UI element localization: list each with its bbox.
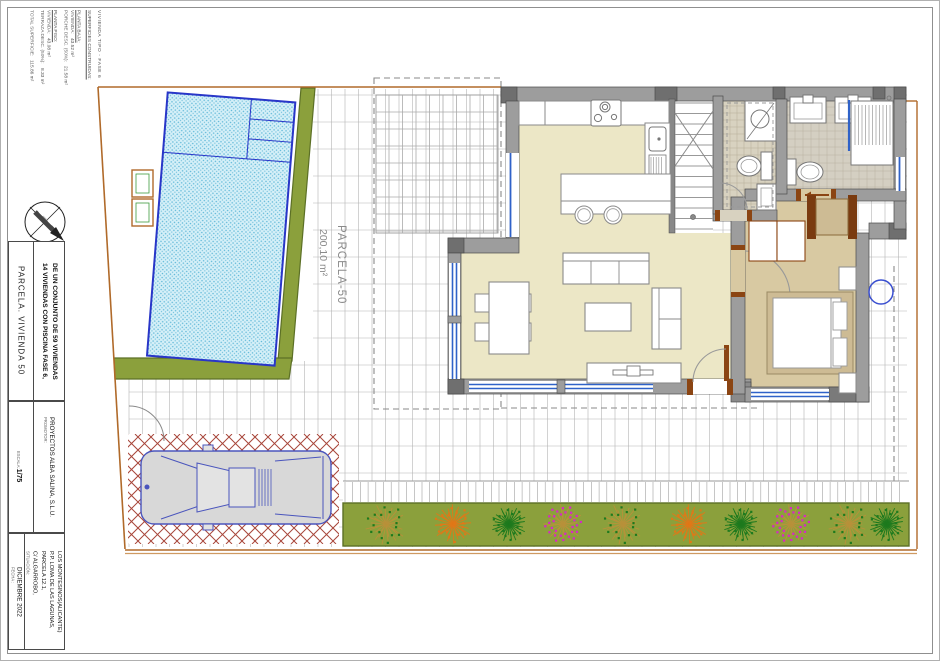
- parcel-title-cell: PARCELA. VIVIENDA 50: [9, 242, 34, 400]
- scale-value: 1/75: [15, 469, 22, 483]
- titleblock-project: PARCELA. VIVIENDA 50 14 VIVIENDAS CON PI…: [8, 241, 65, 401]
- promoter-name: PROYECTOS ALBA SALINA, S.L.U.: [48, 417, 55, 517]
- project-title-line1: 14 VIVIENDAS CON PISCINA FASE 6,: [39, 263, 49, 380]
- scale-label: ESCALA:: [16, 451, 21, 469]
- date-cell: FECHA : DICIEMBRE 2022: [9, 534, 25, 649]
- titleblock-date-location: FECHA : DICIEMBRE 2022 SITUACIÓN: C/ ALG…: [8, 533, 65, 650]
- surfaces-header: SUPERFICIES CONSTRUIDAS:: [84, 10, 90, 114]
- promoter-cell: PROMOTOR: PROYECTOS ALBA SALINA, S.L.U.: [34, 402, 64, 532]
- surfaces-total: TOTAL SUPERFICIE:115.86 m²: [27, 10, 33, 114]
- scale-cell: ESCALA:1/75: [9, 402, 34, 532]
- titleblock-scale-promoter: ESCALA:1/75 PROMOTOR: PROYECTOS ALBA SAL…: [8, 401, 65, 533]
- surfaces-block: TOTAL SUPERFICIE:115.86 m² PLANTA PISO: …: [27, 10, 101, 114]
- parcel-title: PARCELA. VIVIENDA 50: [17, 266, 26, 375]
- doc-type-label: VIVIENDA TIPO - FASE 6: [95, 10, 101, 114]
- date-value: DICIEMBRE 2022: [15, 567, 22, 617]
- drawing-sheet: PARCELA-50 200,10 m² TOTAL SUPERFICIE:11…: [0, 0, 940, 661]
- surfaces-group-planta-piso: PLANTA PISO: VIVIENDA:43.08 m² TERRAZA D…: [37, 10, 56, 114]
- sheet-inner-frame: [7, 7, 933, 654]
- project-title-line2: DE UN CONJUNTO DE 59 VIVIENDAS: [49, 263, 59, 380]
- surfaces-group-planta-baja: PLANTA BAJA: VIVIENDA:43.52 m² PORCHE DE…: [61, 10, 80, 114]
- project-title-cell: 14 VIVIENDAS CON PISCINA FASE 6, DE UN C…: [34, 242, 64, 400]
- location-cell: SITUACIÓN: C/ ALGARROBO, PARCELA 12.1, P…: [25, 534, 64, 649]
